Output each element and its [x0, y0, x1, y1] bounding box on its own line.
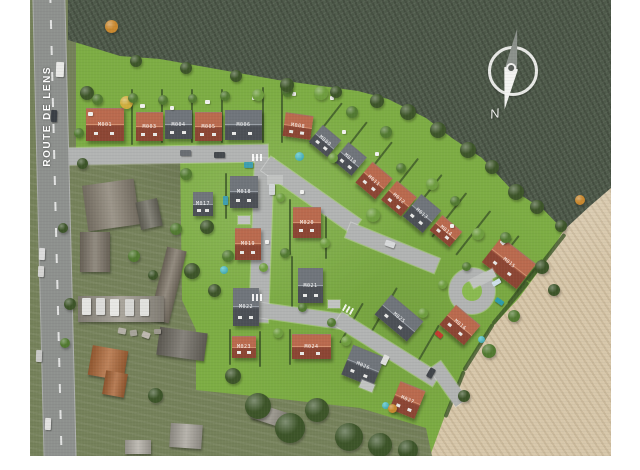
house: M017: [193, 192, 213, 216]
pool-trampoline: [478, 336, 485, 343]
vehicle: [39, 248, 45, 260]
lot-code-label: M009: [309, 125, 342, 157]
tree: [158, 95, 168, 105]
vehicle: [494, 297, 504, 306]
tree: [275, 413, 305, 443]
house: M024: [292, 334, 331, 359]
house: M023: [232, 336, 256, 358]
lot-code-label: M017: [193, 192, 213, 216]
tree: [148, 388, 163, 403]
garden-object: [140, 104, 145, 108]
lot-code-label: M014: [430, 215, 463, 247]
hedge-line: [291, 256, 293, 314]
pool-trampoline: [295, 152, 304, 161]
compass-rose: N: [476, 22, 556, 122]
vehicle: [82, 298, 91, 315]
vehicle: [118, 327, 127, 334]
tree: [280, 78, 294, 92]
lot-code-label: M019: [235, 228, 261, 260]
tree: [60, 338, 70, 348]
tree: [280, 248, 290, 258]
hedge-line: [259, 331, 261, 367]
tree: [220, 91, 230, 101]
garden-object: [375, 152, 379, 156]
driveway: [328, 300, 340, 308]
house: M006: [225, 110, 262, 140]
existing-building: [82, 179, 140, 232]
tree: [230, 70, 242, 82]
vehicle: [223, 196, 228, 205]
pool-trampoline: [220, 266, 228, 274]
garden-object: [88, 112, 93, 116]
garden-object: [170, 106, 174, 110]
tree: [508, 184, 524, 200]
vehicle: [140, 299, 149, 316]
tree: [130, 55, 142, 67]
tree: [58, 223, 68, 233]
tree: [398, 440, 418, 456]
tree: [184, 263, 200, 279]
tree: [370, 94, 384, 108]
tree: [396, 163, 406, 173]
tree: [341, 336, 351, 346]
house: M004: [165, 110, 192, 139]
tree: [366, 208, 380, 222]
tree: [188, 94, 197, 103]
house: M005: [195, 112, 222, 141]
vehicle: [180, 150, 191, 156]
tree: [418, 308, 428, 318]
house: M021: [298, 268, 323, 303]
driveway: [238, 216, 250, 224]
tree: [485, 160, 499, 174]
vehicle: [110, 299, 119, 316]
tree: [458, 390, 470, 402]
tree: [400, 104, 416, 120]
vehicle: [96, 298, 105, 315]
vehicle: [244, 162, 253, 168]
house: M018: [230, 176, 258, 208]
tree: [208, 284, 221, 297]
lot-code-label: M003: [136, 112, 163, 141]
tree: [508, 310, 520, 322]
vehicle: [130, 330, 138, 337]
lot-code-label: M021: [298, 268, 323, 303]
tree: [462, 262, 471, 271]
tree: [77, 158, 88, 169]
lot-code-label: M006: [225, 110, 262, 140]
tree: [535, 260, 549, 274]
garden-object: [300, 190, 304, 194]
house: M014: [430, 215, 463, 247]
tree: [180, 62, 192, 74]
lot-code-label: M027: [389, 381, 425, 419]
tree: [225, 368, 241, 384]
house: M019: [235, 228, 261, 260]
tree: [368, 433, 392, 456]
hedge-line: [229, 329, 231, 365]
tree: [298, 303, 307, 312]
garden-object: [265, 240, 269, 244]
tree: [128, 93, 138, 103]
tree: [500, 232, 511, 243]
house: M027: [389, 381, 425, 419]
house: M010: [333, 142, 367, 176]
house: M003: [136, 112, 163, 141]
vehicle: [56, 62, 65, 77]
tree: [252, 89, 264, 101]
house: M009: [309, 125, 342, 157]
existing-building: [125, 440, 151, 454]
lot-code-label: M020: [293, 207, 321, 238]
tree: [330, 86, 342, 98]
road-segment: [66, 144, 268, 165]
vehicle: [125, 299, 134, 316]
house: M008: [282, 112, 313, 140]
existing-building: [169, 423, 203, 449]
vehicle: [434, 330, 443, 339]
tree: [426, 178, 438, 190]
tree: [222, 250, 234, 262]
tree: [548, 284, 560, 296]
vehicle: [45, 418, 51, 430]
tree: [320, 238, 330, 248]
tree: [575, 195, 585, 205]
tree: [64, 298, 76, 310]
lot-code-label: M010: [333, 142, 367, 176]
tree: [388, 404, 397, 413]
vehicle: [38, 266, 44, 277]
tree: [460, 142, 476, 158]
tree: [128, 250, 140, 262]
tree: [273, 328, 283, 338]
crosswalk-marking: [252, 154, 264, 161]
garden-object: [205, 100, 210, 104]
vehicle: [154, 329, 161, 334]
lot-code-label: M024: [292, 334, 331, 359]
vehicle: [51, 110, 57, 122]
lot-code-label: M008: [282, 112, 313, 140]
tree: [530, 200, 544, 214]
house: M020: [293, 207, 321, 238]
hedge-line: [289, 329, 291, 365]
lot-code-label: M018: [230, 176, 258, 208]
lot-code-label: M025: [375, 295, 424, 342]
garden-object: [342, 130, 346, 134]
hedge-line: [289, 199, 291, 255]
tree: [450, 196, 460, 206]
vehicle: [491, 278, 501, 287]
house: M025: [375, 295, 424, 342]
tree: [430, 122, 446, 138]
tree: [555, 220, 567, 232]
tree: [305, 398, 329, 422]
tree: [327, 318, 336, 327]
tree: [92, 94, 103, 105]
tree: [105, 20, 118, 33]
lot-code-label: M005: [195, 112, 222, 141]
tree: [148, 270, 158, 280]
existing-building: [102, 370, 128, 397]
vehicle: [214, 152, 225, 158]
crosswalk-marking: [252, 294, 264, 301]
tree: [170, 223, 182, 235]
tree: [180, 168, 192, 180]
vehicle: [36, 350, 42, 362]
tree: [259, 263, 268, 272]
tree: [380, 126, 392, 138]
garden-object: [450, 224, 454, 228]
tree: [245, 393, 271, 419]
lot-code-label: M023: [232, 336, 256, 358]
tree: [438, 280, 447, 289]
siteplan-page: ROUTE DE LENS M001 M003 M004 M005 M006 M…: [0, 0, 640, 470]
tree: [276, 193, 285, 202]
tree: [346, 106, 358, 118]
vehicle: [269, 184, 275, 195]
tree: [472, 228, 484, 240]
tree: [328, 153, 338, 163]
tree: [200, 220, 214, 234]
lot-code-label: M004: [165, 110, 192, 139]
tree: [482, 344, 496, 358]
aerial-siteplan-image: ROUTE DE LENS M001 M003 M004 M005 M006 M…: [30, 0, 611, 456]
existing-building: [80, 232, 110, 272]
tree: [335, 423, 363, 451]
driveway: [268, 176, 282, 184]
tree: [314, 86, 328, 100]
tree: [74, 128, 84, 138]
